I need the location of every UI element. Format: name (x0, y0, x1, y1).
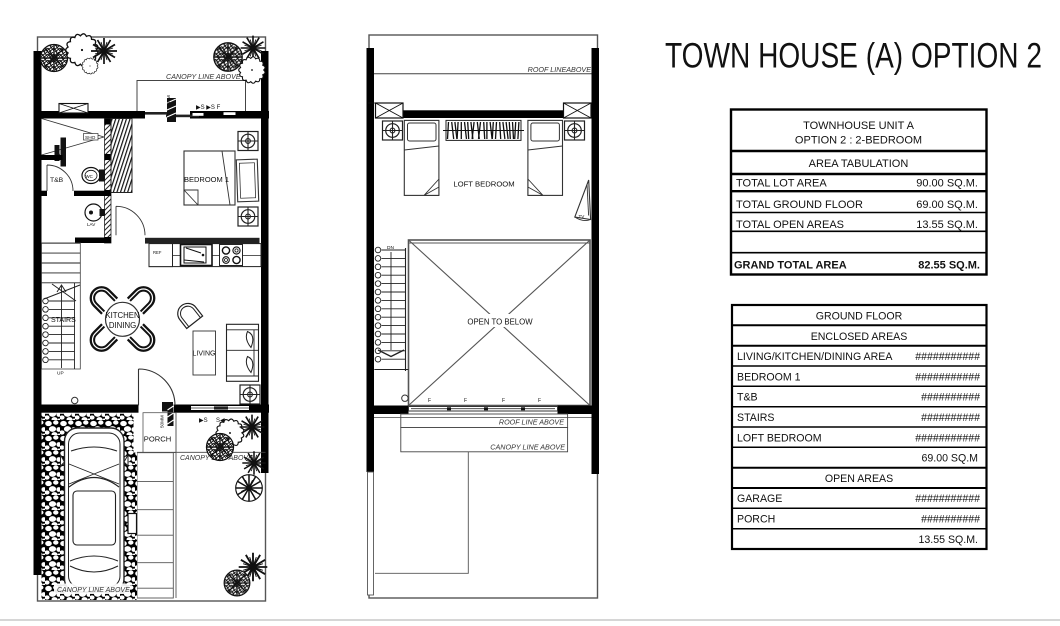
svg-text:##########: ########## (921, 514, 980, 526)
svg-text:DN: DN (387, 245, 394, 251)
svg-text:GROUND FLOOR: GROUND FLOOR (816, 311, 903, 323)
svg-text:WC: WC (86, 174, 93, 179)
svg-text:PORCH: PORCH (737, 514, 775, 526)
svg-text:50MM: 50MM (160, 415, 165, 428)
svg-text:13.55 SQ.M.: 13.55 SQ.M. (919, 534, 978, 546)
svg-text:TOTAL GROUND FLOOR: TOTAL GROUND FLOOR (736, 199, 863, 211)
svg-text:F: F (538, 398, 541, 404)
svg-text:T&B: T&B (50, 177, 64, 184)
svg-text:STAIRS: STAIRS (737, 412, 774, 424)
svg-text:F: F (502, 398, 505, 404)
svg-text:TOWN HOUSE (A) OPTION 2: TOWN HOUSE (A) OPTION 2 (665, 36, 1042, 76)
svg-text:LIVING/KITCHEN/DINING AREA: LIVING/KITCHEN/DINING AREA (737, 351, 893, 363)
svg-text:50MM: 50MM (166, 95, 171, 108)
svg-text:###########: ########### (915, 351, 980, 363)
svg-text:###########: ########### (915, 493, 980, 505)
svg-text:OPEN TO BELOW: OPEN TO BELOW (467, 318, 533, 327)
svg-text:82.55 SQ.M.: 82.55 SQ.M. (918, 260, 980, 272)
svg-text:T&B: T&B (737, 392, 758, 404)
svg-text:F: F (428, 398, 431, 404)
svg-text:LOFT BEDROOM: LOFT BEDROOM (453, 180, 514, 189)
svg-text:69.00 SQ.M.: 69.00 SQ.M. (916, 199, 978, 211)
svg-text:OPTION 2 : 2-BEDROOM: OPTION 2 : 2-BEDROOM (795, 135, 922, 147)
svg-text:LIVING: LIVING (193, 351, 216, 358)
svg-text:###########: ########### (915, 432, 980, 444)
svg-text:AREA TABULATION: AREA TABULATION (809, 158, 909, 170)
svg-text:CANOPY LINE ABOVE: CANOPY LINE ABOVE (57, 587, 130, 594)
svg-text:LAV: LAV (87, 222, 96, 227)
svg-text:KITCHEN: KITCHEN (105, 311, 139, 320)
svg-text:LOFT BEDROOM: LOFT BEDROOM (737, 432, 822, 444)
svg-text:13.55 SQ.M.: 13.55 SQ.M. (916, 219, 978, 231)
svg-text:69.00 SQ.M: 69.00 SQ.M (921, 453, 978, 465)
svg-text:SHO: SHO (85, 135, 96, 141)
svg-text:DINING: DINING (109, 321, 136, 330)
svg-text:UP: UP (57, 371, 64, 377)
svg-text:90.00 SQ.M.: 90.00 SQ.M. (916, 178, 978, 190)
svg-text:GRAND TOTAL AREA: GRAND TOTAL AREA (734, 260, 847, 272)
svg-text:###########: ########### (915, 371, 980, 383)
svg-text:##########: ########## (921, 392, 980, 404)
svg-text:TOWNHOUSE UNIT A: TOWNHOUSE UNIT A (803, 120, 914, 132)
svg-text:F: F (464, 398, 467, 404)
svg-text:TOTAL OPEN AREAS: TOTAL OPEN AREAS (736, 219, 844, 231)
svg-text:CANOPY LINE ABOVE: CANOPY LINE ABOVE (490, 443, 565, 452)
svg-text:ROOF LINE ABOVE: ROOF LINE ABOVE (499, 418, 564, 427)
svg-text:CANOPY LINE ABOVE: CANOPY LINE ABOVE (166, 72, 241, 81)
svg-text:REF: REF (153, 250, 162, 255)
svg-text:GARAGE: GARAGE (737, 493, 782, 505)
svg-text:ENCLOSED AREAS: ENCLOSED AREAS (811, 331, 908, 343)
svg-text:TV: TV (579, 214, 586, 219)
svg-text:PORCH: PORCH (144, 435, 171, 444)
svg-text:OPEN AREAS: OPEN AREAS (825, 473, 893, 485)
svg-text:ROOF LINEABOVE: ROOF LINEABOVE (528, 65, 592, 74)
svg-text:TOTAL LOT AREA: TOTAL LOT AREA (736, 178, 827, 190)
svg-text:##########: ########## (921, 412, 980, 424)
svg-text:BEDROOM 1: BEDROOM 1 (737, 371, 801, 383)
svg-text:BEDROOM 1: BEDROOM 1 (184, 175, 229, 184)
svg-text:▶S ▶S F: ▶S ▶S F (196, 105, 221, 111)
svg-text:STAIRS: STAIRS (51, 317, 76, 324)
